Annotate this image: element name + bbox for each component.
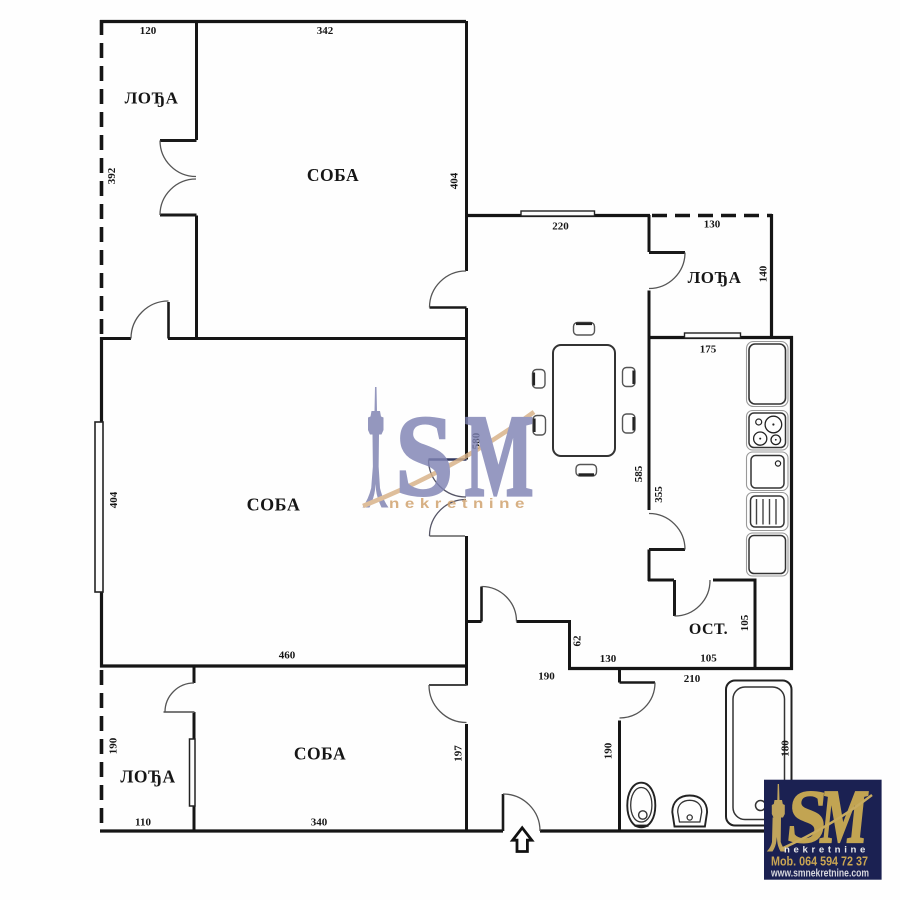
svg-text:197: 197 (453, 745, 465, 762)
svg-text:585: 585 (633, 465, 645, 482)
svg-text:190: 190 (108, 737, 120, 754)
svg-text:190: 190 (603, 742, 615, 759)
svg-text:105: 105 (700, 653, 717, 665)
svg-text:СОБА: СОБА (247, 495, 301, 515)
svg-text:404: 404 (108, 491, 120, 508)
svg-text:220: 220 (552, 221, 569, 233)
svg-text:ЛОЂА: ЛОЂА (120, 767, 175, 787)
svg-text:ОСТ.: ОСТ. (689, 621, 728, 638)
svg-text:120: 120 (140, 25, 157, 37)
svg-text:180: 180 (780, 740, 792, 757)
svg-text:110: 110 (135, 817, 151, 829)
svg-text:nekretnine: nekretnine (389, 495, 530, 511)
svg-text:190: 190 (538, 671, 555, 683)
svg-text:130: 130 (600, 653, 617, 665)
svg-text:130: 130 (704, 219, 721, 231)
svg-text:105: 105 (739, 614, 751, 631)
svg-text:ЛОЂА: ЛОЂА (125, 89, 179, 108)
svg-text:404: 404 (449, 172, 461, 189)
svg-text:175: 175 (700, 344, 717, 356)
svg-text:СОБА: СОБА (307, 165, 359, 185)
svg-text:СОБА: СОБА (294, 744, 346, 764)
svg-text:392: 392 (106, 167, 118, 184)
svg-text:340: 340 (311, 817, 328, 829)
svg-text:210: 210 (684, 673, 701, 685)
svg-text:ЛОЂА: ЛОЂА (688, 268, 742, 287)
svg-text:342: 342 (317, 25, 334, 37)
svg-text:62: 62 (572, 635, 584, 647)
svg-text:Mob. 064 594 72 37: Mob. 064 594 72 37 (771, 855, 868, 869)
svg-text:www.smnekretnine.com: www.smnekretnine.com (770, 868, 869, 880)
svg-text:140: 140 (758, 265, 770, 282)
svg-text:355: 355 (653, 486, 665, 503)
svg-text:460: 460 (279, 650, 296, 662)
